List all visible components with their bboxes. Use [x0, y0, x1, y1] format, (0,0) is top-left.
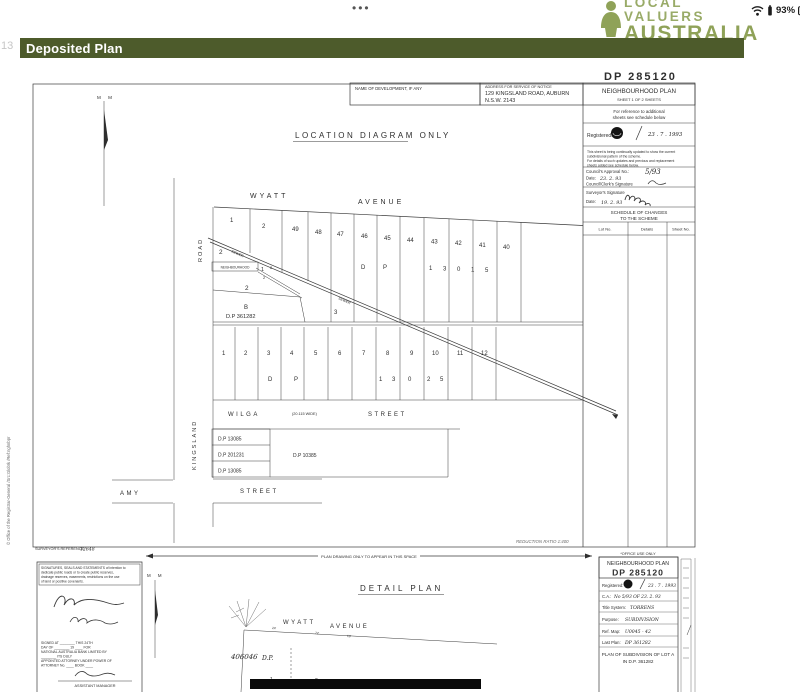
signed-line: DAY OF ________ 19 ____ FOR: [41, 646, 91, 650]
office-use-panel: *OFFICE USE ONLY NEIGHBOURHOOD PLAN DP 2…: [599, 552, 678, 692]
svg-text:P: P: [383, 265, 387, 271]
lot-grid-row2: [213, 325, 583, 400]
app-header-bar: Deposited Plan: [20, 38, 744, 58]
name-of-development-label: NAME OF DEVELOPMENT, IF ANY: [355, 86, 422, 91]
lot-label: 9: [410, 351, 414, 357]
lot-label: 40: [503, 245, 510, 251]
reference-note-line1: For reference to additional: [613, 109, 664, 114]
lot-label: 43: [431, 240, 438, 246]
update-note-line3: For details of such updates and previous…: [587, 159, 674, 163]
svg-text:1: 1: [379, 377, 383, 383]
lot-3: 3: [334, 310, 338, 316]
page-title: Deposited Plan: [20, 41, 123, 56]
lot-label: 46: [361, 234, 368, 240]
svg-text:3: 3: [392, 377, 396, 383]
sheet-divider: PLAN DRAWING ONLY TO APPEAR IN THIS SPAC…: [146, 554, 592, 560]
part-lot-2: 2: [245, 285, 249, 292]
reduction-ratio: REDUCTION RATIO 1:400: [516, 539, 569, 544]
statement-line: drainage reserves, easements, restrictio…: [41, 575, 120, 579]
lot-label: 12: [481, 351, 488, 357]
registered-date: 23 . 7 . 1993: [647, 584, 676, 589]
street-tick: 24': [272, 626, 277, 630]
surveyor-date-label: Date:: [586, 199, 596, 204]
street-label: STREET: [240, 489, 279, 495]
north-mark-label: M M: [147, 573, 165, 578]
binding-edge-strip: [681, 558, 695, 692]
registration-panel: For reference to additional sheets see s…: [583, 105, 695, 547]
lot-label: 6: [338, 351, 342, 357]
lot-label: 4: [290, 351, 294, 357]
council-clerk-signature: [648, 181, 666, 185]
detail-plan: M M DETAIL PLAN WYATT AVENUE 24': [147, 573, 497, 692]
schedule-col-lot: Lot No.: [599, 227, 612, 232]
street-wyatt: WYATT: [250, 193, 288, 200]
divider-note: PLAN DRAWING ONLY TO APPEAR IN THIS SPAC…: [321, 554, 417, 559]
update-note-line4: sheets added see schedule below.: [587, 164, 639, 168]
dp-361282: D.P 361282: [226, 314, 255, 320]
statement-line: of land or positive covenants.: [41, 580, 84, 584]
last-plan-value: DP 361282: [624, 640, 651, 646]
lot-label: 41: [479, 243, 486, 249]
registered-label: Registered:: [587, 133, 613, 139]
neighbourhood-label: NEIGHBOURHOOD: [221, 266, 251, 270]
ref-map-label: Ref. Map:: [602, 629, 620, 634]
reference-note-line2: sheets see schedule below: [613, 115, 667, 120]
surveyors-reference-label: SURVEYOR'S REFERENCE:: [35, 547, 85, 551]
wilga-street: WILGA (20.115 WIDE) STREET: [213, 412, 460, 429]
sheet2: SIGNATURES, SEALS AND STATEMENTS of inte…: [37, 552, 695, 692]
signature-2: [70, 617, 118, 624]
lot-label: 47: [337, 232, 344, 238]
lot-numbers-row2: 1 2 3 4 5 6 7 8 9 10 11 12: [222, 351, 488, 357]
plan-type: NEIGHBOURHOOD PLAN: [607, 561, 669, 567]
location-diagram: M M LOCATION DIAGRAM ONLY WYATT AVENUE R…: [97, 95, 618, 544]
corner-bearing-marks: [229, 599, 266, 627]
signed-line: APPOINTED ATTORNEY UNDER POWER OF: [41, 659, 112, 663]
svg-text:0: 0: [457, 267, 461, 273]
ca-label: C.A.:: [602, 594, 611, 599]
part-lots: 2 NEIGHBOURHOOD 1 2 2 2 B D.P 361282 3: [212, 249, 338, 322]
svg-text:D: D: [361, 265, 366, 271]
street-kingsland: KINGSLAND: [192, 420, 198, 470]
plan-of-line2: IN D.P. 361282: [623, 659, 654, 664]
lot-label: 11: [457, 351, 464, 357]
sheet1: DP 285120 NAME OF DEVELOPMENT, IF ANY AD…: [6, 71, 695, 553]
dp-box-row: D.P 13085: [218, 437, 242, 443]
road-lines: [174, 178, 583, 543]
title-system-label: Title System:: [602, 605, 626, 610]
street-avenue: AVENUE: [330, 624, 369, 630]
ca-value: No 5/93 OF 23. 2. 93: [613, 595, 661, 600]
council-date-label: Date:: [586, 176, 596, 181]
street-wilga: WILGA: [228, 412, 260, 418]
sewer-label: SEWER: [231, 249, 245, 258]
lot-b: B: [244, 305, 248, 311]
svg-text:5: 5: [485, 268, 489, 274]
svg-text:1: 1: [471, 268, 475, 274]
svg-text:5: 5: [440, 377, 444, 383]
lot-label: 7: [362, 351, 366, 357]
update-note-line1: This sheet is being continually updated …: [587, 150, 675, 154]
lot-label: 44: [407, 238, 414, 244]
lot-label: 2: [262, 224, 266, 230]
lot-label: 48: [315, 230, 322, 236]
lot-label: 8: [386, 351, 390, 357]
signed-line: ________ ITS DULY: [40, 655, 73, 659]
signatures-panel: SIGNATURES, SEALS AND STATEMENTS of inte…: [37, 562, 142, 692]
address-line1: 129 KINGSLAND ROAD, AUBURN: [485, 91, 569, 97]
council-clerk-label: Council/Clerk's Signature: [586, 182, 634, 187]
street-label: STREET: [368, 412, 407, 418]
schedule-title-line1: SCHEDULE OF CHANGES: [611, 210, 668, 215]
signed-line: ATTORNEY No. ____ BOOK ____: [41, 664, 93, 668]
svg-text:P: P: [294, 377, 298, 383]
north-mark-label: M M: [97, 95, 115, 100]
statement-line: dedicate public roads or to create publi…: [41, 571, 114, 575]
dp-reference-boxes: D.P 13085 D.P 201231 D.P 13085 D.P 10385: [212, 429, 448, 477]
schedule-col-sheet: Sheet No.: [672, 227, 690, 232]
plan-type: NEIGHBOURHOOD PLAN: [602, 88, 676, 95]
surveyor-date: 19. 2. 93: [601, 200, 622, 206]
svg-text:D: D: [268, 377, 273, 383]
surveyor-signature-label: Surveyor's Signature: [586, 190, 625, 195]
office-use-label: *OFFICE USE ONLY: [620, 552, 656, 556]
registered-label: Registered:: [602, 583, 623, 588]
lot-label: 5: [314, 351, 318, 357]
statement-line: SIGNATURES, SEALS AND STATEMENTS of inte…: [41, 566, 126, 570]
redaction-bar: [250, 679, 481, 689]
part-lot-1: 1: [261, 267, 264, 273]
street-tick: 10': [347, 634, 352, 638]
dp13025-label: D P 1 3 0 2 5: [268, 377, 444, 383]
dp-box-row: D.P 201231: [218, 453, 245, 459]
dp-number: 406046: [230, 652, 259, 661]
purpose-label: Purpose:: [602, 617, 619, 622]
lot-label: 1: [222, 351, 226, 357]
council-approval-no: 5/93: [645, 168, 661, 176]
lot-label: 10: [432, 351, 439, 357]
signature-1: [54, 596, 124, 607]
surveyors-reference-no: 12648: [80, 547, 95, 553]
registered-date: 23 . 7 . 1993: [647, 132, 683, 138]
signed-line: SIGNED AT ________ THIS 24TH: [41, 641, 93, 645]
signed-line: NATIONAL AUSTRALIA BANK LIMITED BY: [41, 650, 108, 654]
dp13015-label: D P 1 3 0 1 5: [361, 265, 489, 274]
street-tick: 72': [315, 631, 320, 635]
address-label: ADDRESS FOR SERVICE OF NOTICE: [485, 85, 552, 89]
lot-grid-row1: [213, 209, 583, 322]
page-margin-number: 13: [1, 40, 13, 52]
part-lot-2: 2: [263, 275, 266, 280]
lot-label: 49: [292, 227, 299, 233]
ref-map-value: U0045 - 42: [625, 629, 651, 635]
dp-label: D.P.: [261, 655, 274, 662]
sheet1-footer: SURVEYOR'S REFERENCE: 12648 © Office of …: [6, 436, 95, 553]
registration-seal: [624, 580, 633, 589]
street-road: ROAD: [198, 238, 204, 262]
amy-street: AMY STREET: [112, 479, 322, 503]
scanned-deposited-plan: DP 285120 NAME OF DEVELOPMENT, IF ANY AD…: [0, 0, 800, 692]
lot-label: 1: [230, 218, 234, 224]
plan-of-line1: PLAN OF SUBDIVISION OF LOT A: [602, 652, 675, 657]
address-line2: N.S.W. 2143: [485, 98, 515, 104]
svg-text:1: 1: [429, 266, 433, 272]
dp-stamp: DP 285120: [604, 71, 677, 83]
council-approval-label: Council's Approval No.:: [586, 169, 629, 174]
wilga-width: (20.115 WIDE): [292, 412, 318, 416]
schedule-col-details: Details: [641, 227, 653, 232]
dp-box-row: D.P 13085: [218, 469, 242, 475]
dp-box-right: D.P 10385: [293, 453, 317, 459]
assistant-manager-label: ASSISTANT MANAGER: [75, 684, 116, 688]
surveyor-signature: [625, 195, 650, 206]
svg-text:3: 3: [443, 267, 447, 273]
street-amy: AMY: [120, 491, 141, 497]
lot-label: 3: [267, 351, 271, 357]
street-wyatt: WYATT: [283, 620, 316, 626]
lot-label: 2: [244, 351, 248, 357]
schedule-title-line2: TO THE SCHEME: [620, 216, 658, 221]
sheet-note: SHEET 1 OF 2 SHEETS: [617, 97, 661, 102]
north-arrow-icon: [155, 580, 158, 658]
part-lot-2: 2: [219, 249, 223, 256]
title-system-value: TORRENS: [630, 605, 654, 611]
lot-label: 42: [455, 241, 462, 247]
north-arrow-icon: [104, 101, 108, 206]
lot-numbers-row1: 1 2 49 48 47 46 45 44 43 42 41 40: [230, 218, 510, 251]
street-avenue: AVENUE: [358, 199, 404, 206]
svg-text:0: 0: [408, 377, 412, 383]
signature-3: [75, 671, 115, 676]
svg-text:2: 2: [427, 377, 431, 383]
lot-label: 45: [384, 236, 391, 242]
detail-plan-title: DETAIL PLAN: [360, 584, 443, 593]
purpose-value: SUBDIVISION: [625, 617, 660, 623]
location-diagram-title: LOCATION DIAGRAM ONLY: [295, 131, 451, 140]
last-plan-label: Last Plan:: [602, 640, 621, 645]
header-boxes: NAME OF DEVELOPMENT, IF ANY ADDRESS FOR …: [350, 83, 695, 105]
dp-number-big: DP 285120: [612, 568, 664, 578]
registrar-margin-note: © Office of the Registrar-General /Src:G…: [6, 436, 11, 545]
update-note-line2: subdivisional pattern of the scheme.: [587, 155, 641, 159]
